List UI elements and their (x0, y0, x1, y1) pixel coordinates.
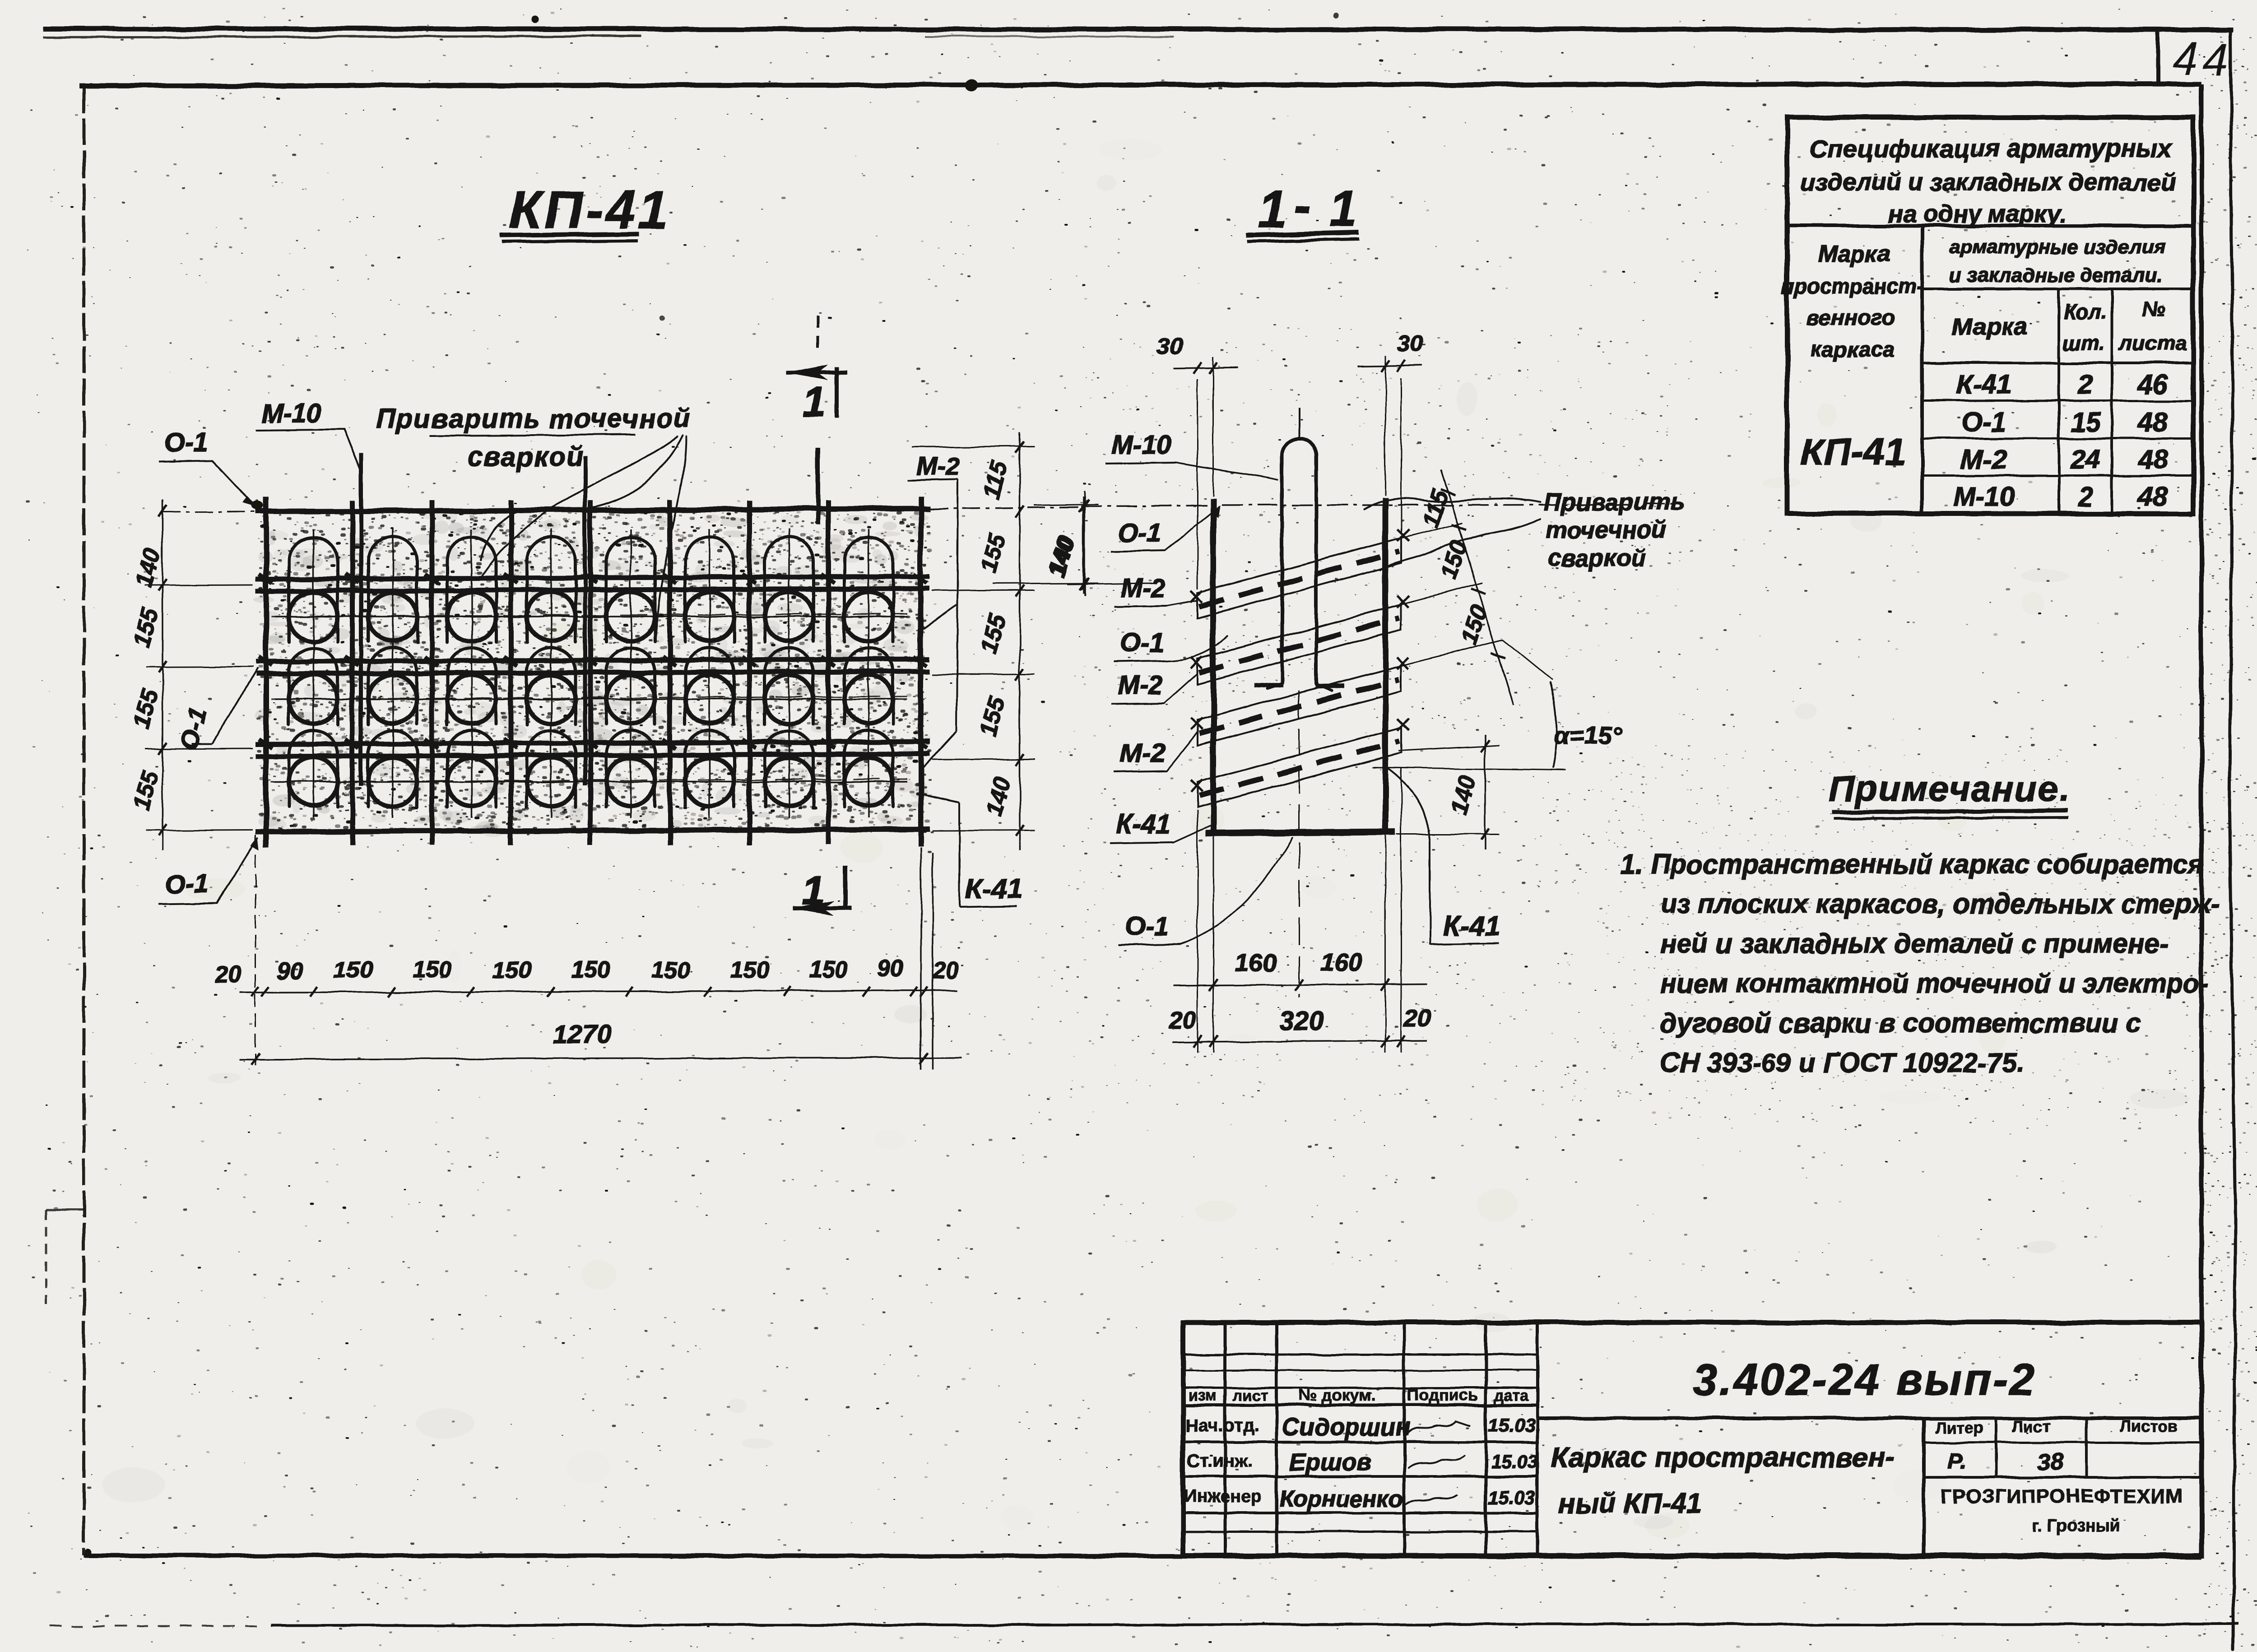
svg-text:150: 150 (651, 957, 690, 983)
svg-text:лист: лист (1233, 1387, 1268, 1404)
svg-text:1: 1 (802, 868, 825, 914)
svg-text:α=15°: α=15° (1554, 721, 1623, 749)
svg-text:нием контактной точечной и эле: нием контактной точечной и электро- (1660, 968, 2209, 998)
svg-text:3.402-24 вып-2: 3.402-24 вып-2 (1693, 1355, 2036, 1404)
svg-text:155: 155 (128, 605, 164, 650)
svg-text:140: 140 (131, 545, 166, 590)
svg-text:15.03: 15.03 (1488, 1487, 1535, 1508)
svg-text:№ докум.: № докум. (1299, 1386, 1375, 1404)
svg-text:М-2: М-2 (1120, 738, 1166, 768)
svg-text:15.03: 15.03 (1491, 1451, 1538, 1472)
svg-text:М-10: М-10 (1111, 430, 1171, 459)
svg-text:Литер: Литер (1935, 1418, 1983, 1437)
svg-text:20: 20 (1169, 1007, 1196, 1034)
svg-text:и закладные детали.: и закладные детали. (1950, 265, 2163, 287)
svg-text:на одну марку.: на одну марку. (1888, 200, 2067, 227)
svg-text:К-41: К-41 (1956, 369, 2012, 399)
svg-text:О-1: О-1 (1125, 912, 1169, 941)
svg-text:каркаса: каркаса (1811, 338, 1895, 362)
svg-text:Корниенко: Корниенко (1279, 1486, 1403, 1512)
svg-text:90: 90 (877, 955, 903, 981)
svg-text:ный КП-41: ный КП-41 (1558, 1488, 1702, 1519)
svg-text:М-2: М-2 (916, 452, 960, 480)
svg-text:-: - (1294, 177, 1310, 234)
svg-text:О-1: О-1 (1961, 407, 2006, 437)
svg-text:Кол.: Кол. (2064, 300, 2107, 323)
svg-text:пространст-: пространст- (1782, 274, 1923, 298)
svg-text:24: 24 (2070, 444, 2101, 474)
svg-text:Приварить точечной: Приварить точечной (376, 404, 691, 434)
svg-text:2: 2 (2077, 369, 2093, 399)
svg-text:г. Грозный: г. Грозный (2032, 1516, 2121, 1535)
svg-text:30: 30 (1157, 333, 1183, 359)
svg-text:Приварить: Приварить (1544, 488, 1685, 515)
svg-text:О-1: О-1 (164, 428, 208, 457)
svg-text:15.03: 15.03 (1488, 1415, 1535, 1436)
svg-text:КП-41: КП-41 (509, 180, 671, 240)
svg-text:155: 155 (128, 768, 164, 813)
svg-text:15: 15 (2071, 407, 2101, 437)
svg-text:155: 155 (975, 611, 1011, 656)
svg-text:изделий и закладных деталей: изделий и закладных деталей (1801, 169, 2176, 196)
svg-text:20: 20 (932, 958, 959, 984)
svg-text:Р.: Р. (1948, 1448, 1967, 1473)
svg-text:М-2: М-2 (1118, 671, 1163, 700)
svg-text:1: 1 (1259, 181, 1286, 237)
svg-text:М-2: М-2 (1960, 444, 2007, 474)
svg-text:160: 160 (1235, 948, 1277, 977)
svg-text:155: 155 (975, 694, 1011, 739)
svg-text:изм: изм (1189, 1387, 1217, 1404)
svg-text:дата: дата (1494, 1387, 1529, 1404)
svg-text:СН 393-69 и ГОСТ 10922-75.: СН 393-69 и ГОСТ 10922-75. (1660, 1048, 2025, 1078)
svg-text:90: 90 (277, 959, 303, 985)
svg-text:О-1: О-1 (1120, 628, 1164, 658)
svg-text:М-10: М-10 (1953, 482, 2015, 512)
svg-text:1: 1 (803, 379, 826, 425)
svg-text:150: 150 (571, 957, 611, 983)
svg-text:Ершов: Ершов (1289, 1449, 1372, 1476)
svg-text:1: 1 (1329, 180, 1357, 237)
svg-text:150: 150 (334, 957, 373, 983)
svg-text:сваркой: сваркой (468, 441, 584, 472)
svg-text:155: 155 (128, 686, 164, 731)
svg-text:Ст.инж.: Ст.инж. (1187, 1451, 1252, 1471)
svg-text:140: 140 (1044, 535, 1079, 580)
svg-text:Нач.отд.: Нач.отд. (1185, 1416, 1259, 1436)
svg-text:О-1: О-1 (1118, 518, 1161, 548)
svg-text:ГРОЗГИПРОНЕФТЕХИМ: ГРОЗГИПРОНЕФТЕХИМ (1941, 1485, 2183, 1508)
svg-text:115: 115 (978, 458, 1013, 501)
svg-text:30: 30 (1397, 330, 1423, 357)
svg-text:150: 150 (1456, 602, 1493, 648)
svg-text:160: 160 (1320, 947, 1362, 976)
svg-text:дуговой сварки в соответствии: дуговой сварки в соответствии с (1660, 1008, 2141, 1038)
svg-text:150: 150 (809, 957, 849, 983)
svg-text:150: 150 (730, 957, 769, 983)
svg-text:38: 38 (2037, 1449, 2063, 1475)
svg-text:140: 140 (1445, 772, 1481, 817)
svg-text:М-2: М-2 (1120, 573, 1166, 603)
svg-text:К-41: К-41 (965, 873, 1023, 905)
svg-text:46: 46 (2137, 369, 2168, 399)
svg-text:венного: венного (1807, 306, 1895, 330)
svg-text:1270: 1270 (553, 1020, 611, 1049)
svg-text:ней и закладных деталей с прим: ней и закладных деталей с примене- (1660, 928, 2169, 959)
svg-text:20: 20 (1403, 1005, 1431, 1032)
svg-text:2: 2 (2077, 482, 2093, 512)
svg-text:48: 48 (2137, 482, 2168, 512)
svg-text:Марка: Марка (1818, 241, 1891, 267)
svg-text:4: 4 (2203, 34, 2229, 86)
svg-text:20: 20 (214, 961, 241, 988)
svg-text:4: 4 (2172, 32, 2198, 84)
svg-text:Инженер: Инженер (1184, 1486, 1262, 1506)
svg-text:листа: листа (2119, 331, 2187, 355)
svg-text:Спецификация арматурных: Спецификация арматурных (1809, 134, 2173, 162)
svg-text:Примечание.: Примечание. (1829, 769, 2070, 809)
svg-text:О-1: О-1 (165, 869, 209, 899)
svg-text:Сидоршин: Сидоршин (1282, 1414, 1411, 1441)
svg-text:140: 140 (980, 774, 1016, 818)
svg-text:сваркой: сваркой (1547, 544, 1646, 571)
svg-text:1. Пространственный каркас соб: 1. Пространственный каркас собирается (1621, 849, 2204, 879)
svg-text:150: 150 (413, 957, 452, 983)
svg-text:арматурные изделия: арматурные изделия (1949, 236, 2165, 258)
svg-text:150: 150 (492, 957, 531, 983)
svg-text:155: 155 (975, 530, 1011, 575)
svg-text:О-1: О-1 (174, 705, 213, 753)
svg-text:шт.: шт. (2062, 331, 2105, 354)
svg-text:из плоских каркасов, отдельных: из плоских каркасов, отдельных стерж- (1660, 889, 2220, 919)
svg-text:точечной: точечной (1546, 516, 1667, 543)
svg-text:Марка: Марка (1952, 313, 2028, 340)
svg-text:К-41: К-41 (1443, 910, 1500, 942)
svg-text:№: № (2141, 297, 2165, 320)
svg-text:М-10: М-10 (262, 399, 321, 428)
svg-text:КП-41: КП-41 (1800, 431, 1905, 473)
svg-text:48: 48 (2137, 407, 2168, 437)
svg-text:К-41: К-41 (1117, 809, 1170, 839)
svg-text:Каркас пространствен-: Каркас пространствен- (1551, 1442, 1894, 1473)
svg-text:150: 150 (1436, 537, 1473, 582)
svg-text:320: 320 (1280, 1007, 1324, 1036)
svg-text:Листов: Листов (2120, 1417, 2178, 1435)
svg-text:48: 48 (2137, 444, 2168, 474)
svg-text:Подпись: Подпись (1407, 1386, 1478, 1404)
svg-text:Лист: Лист (2012, 1417, 2050, 1435)
